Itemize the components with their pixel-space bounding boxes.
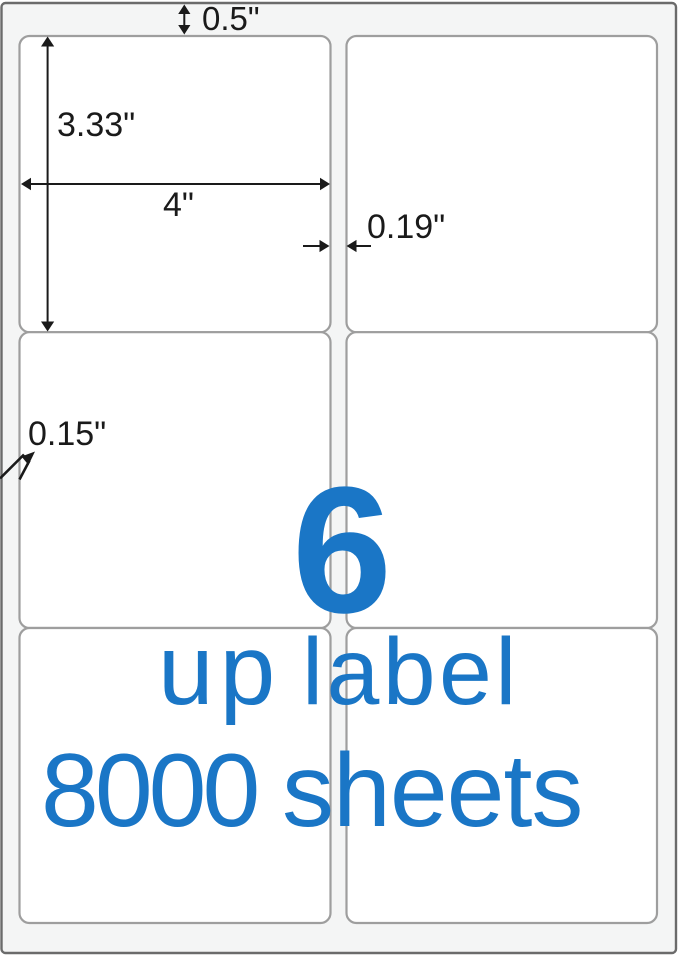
svg-text:3.33": 3.33" — [57, 106, 135, 144]
svg-text:0.19": 0.19" — [367, 208, 445, 246]
svg-text:4": 4" — [163, 186, 194, 224]
svg-text:label: label — [302, 619, 520, 725]
svg-text:0.5": 0.5" — [202, 0, 260, 37]
svg-text:up: up — [158, 614, 281, 726]
svg-text:sheets: sheets — [282, 733, 582, 849]
svg-text:0.15": 0.15" — [28, 415, 106, 453]
svg-text:8000: 8000 — [41, 733, 257, 849]
